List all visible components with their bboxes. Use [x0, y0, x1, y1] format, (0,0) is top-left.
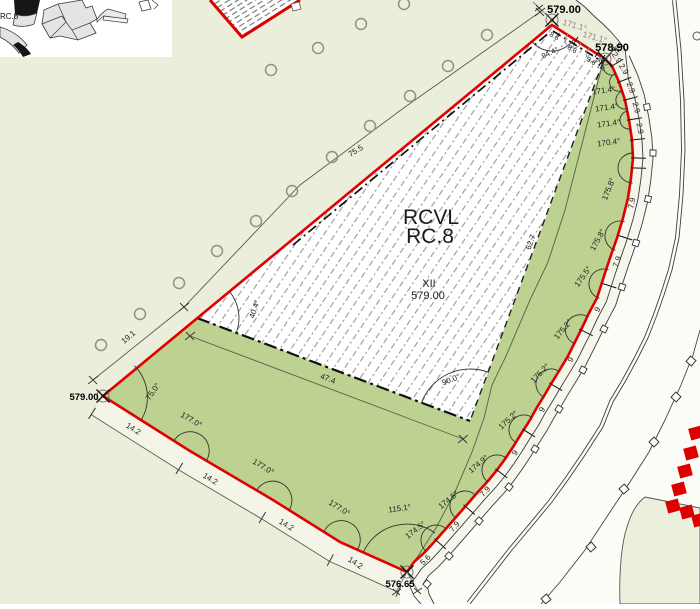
svg-text:576.65: 576.65	[385, 579, 415, 590]
svg-text:579.00: 579.00	[411, 290, 445, 302]
svg-text:XII: XII	[422, 278, 435, 290]
svg-text:579.00: 579.00	[547, 4, 581, 16]
svg-text:579.00: 579.00	[69, 392, 98, 403]
svg-text:RC.8: RC.8	[406, 225, 454, 248]
svg-text:RC.8: RC.8	[0, 12, 19, 21]
